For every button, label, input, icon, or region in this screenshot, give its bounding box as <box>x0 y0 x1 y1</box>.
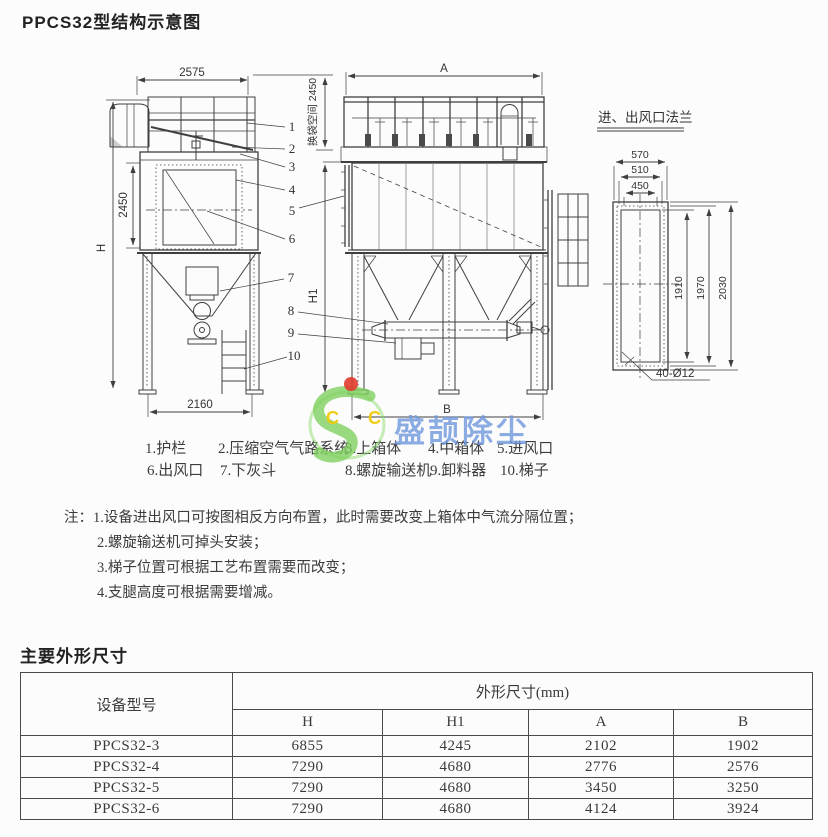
table-row: PPCS32-5 7290 4680 3450 3250 <box>21 778 813 799</box>
callouts: 1 2 3 4 5 6 7 8 9 10 <box>207 119 396 369</box>
notes-prefix: 注： <box>64 510 93 526</box>
callout-2: 2 <box>289 141 296 156</box>
value-cell: 4680 <box>383 778 529 799</box>
model-cell: PPCS32-5 <box>21 778 233 799</box>
value-cell: 1902 <box>674 736 813 757</box>
table-header-B: B <box>674 710 813 736</box>
value-cell: 4680 <box>383 757 529 778</box>
legend-item-5: 5.进风口 <box>497 437 553 458</box>
front-view: A 换袋空间 2450 <box>253 63 588 420</box>
table-header-model: 设备型号 <box>21 673 233 736</box>
dim-1970-label: 1970 <box>695 276 707 300</box>
value-cell: 7290 <box>233 799 383 820</box>
dim-2575-label: 2575 <box>179 67 205 79</box>
table-header-H1: H1 <box>383 710 529 736</box>
notes-block: 注：1.设备进出风口可按图相反方向布置，此时需要改变上箱体中气流分隔位置； 2.… <box>64 506 582 606</box>
flange-view: 进、出风口法兰 570 510 450 <box>597 110 738 380</box>
table-row: PPCS32-4 7290 4680 2776 2576 <box>21 757 813 778</box>
note-text-1: 1.设备进出风口可按图相反方向布置，此时需要改变上箱体中气流分隔位置； <box>93 510 582 526</box>
value-cell: 7290 <box>233 757 383 778</box>
callout-7: 7 <box>288 270 295 285</box>
value-cell: 4124 <box>529 799 674 820</box>
callout-8: 8 <box>288 303 295 318</box>
callout-1: 1 <box>289 119 296 134</box>
dim-450-label: 450 <box>631 180 649 192</box>
value-cell: 3250 <box>674 778 813 799</box>
dim-H-label: H <box>96 244 108 252</box>
value-cell: 7290 <box>233 778 383 799</box>
legend-item-6: 6.出风口 <box>147 459 203 480</box>
legend-item-1: 1.护栏 <box>145 437 186 458</box>
model-cell: PPCS32-3 <box>21 736 233 757</box>
value-cell: 6855 <box>233 736 383 757</box>
pulse-valves <box>375 118 538 146</box>
dim-2160-label: 2160 <box>187 399 213 411</box>
legend-item-2: 2.压缩空气气路系统 <box>218 437 349 458</box>
structure-diagram: 2575 H <box>0 0 828 480</box>
side-view: 2575 H <box>96 67 263 417</box>
legend-item-10: 10.梯子 <box>500 459 549 480</box>
table-row: PPCS32-6 7290 4680 4124 3924 <box>21 799 813 820</box>
note-line-1: 注：1.设备进出风口可按图相反方向布置，此时需要改变上箱体中气流分隔位置； <box>64 506 582 531</box>
table-header-H: H <box>233 710 383 736</box>
value-cell: 4680 <box>383 799 529 820</box>
dim-2450-label: 2450 <box>118 192 130 218</box>
legend-item-4: 4.中箱体 <box>428 437 484 458</box>
dimensions-section-title: 主要外形尺寸 <box>20 642 128 667</box>
table-row: PPCS32-3 6855 4245 2102 1902 <box>21 736 813 757</box>
dim-B-label: B <box>443 404 451 416</box>
legend-item-3: 3.上箱体 <box>345 437 401 458</box>
note-line-4: 4.支腿高度可根据需要增减。 <box>64 581 582 606</box>
table-header-A: A <box>529 710 674 736</box>
value-cell: 3450 <box>529 778 674 799</box>
dim-A-label: A <box>440 63 448 75</box>
legend-item-9: 9.卸料器 <box>430 459 486 480</box>
dim-510-label: 510 <box>631 164 649 176</box>
valve-bodies <box>365 134 532 146</box>
flange-title: 进、出风口法兰 <box>598 110 693 125</box>
model-cell: PPCS32-6 <box>21 799 233 820</box>
document-page: PPCS32型结构示意图 2575 H <box>0 0 828 837</box>
note-line-2: 2.螺旋输送机可掉头安装； <box>64 531 582 556</box>
value-cell: 4245 <box>383 736 529 757</box>
value-cell: 3924 <box>674 799 813 820</box>
callout-4: 4 <box>289 182 296 197</box>
legend-item-8: 8.螺旋输送机 <box>345 459 431 480</box>
dimensions-table: 设备型号 外形尺寸(mm) H H1 A B PPCS32-3 6855 424… <box>20 672 813 820</box>
callout-9: 9 <box>288 325 295 340</box>
dim-2030-label: 2030 <box>717 276 729 300</box>
legend-item-7: 7.下灰斗 <box>220 459 276 480</box>
callout-10: 10 <box>288 348 301 363</box>
note-line-3: 3.梯子位置可根据工艺布置需要而改变； <box>64 556 582 581</box>
callout-5: 5 <box>289 203 296 218</box>
table-header-group: 外形尺寸(mm) <box>233 673 813 710</box>
value-cell: 2776 <box>529 757 674 778</box>
dim-H1-label: H1 <box>308 289 320 304</box>
air-tank <box>501 105 518 146</box>
dim-1910-label: 1910 <box>673 276 685 300</box>
value-cell: 2102 <box>529 736 674 757</box>
callout-3: 3 <box>289 159 296 174</box>
dim-bolt-holes-label: 40-Ø12 <box>656 368 694 380</box>
dim-bag-space-label: 换袋空间 2450 <box>306 78 319 146</box>
model-cell: PPCS32-4 <box>21 757 233 778</box>
value-cell: 2576 <box>674 757 813 778</box>
dim-570-label: 570 <box>631 149 649 161</box>
callout-6: 6 <box>289 231 296 246</box>
